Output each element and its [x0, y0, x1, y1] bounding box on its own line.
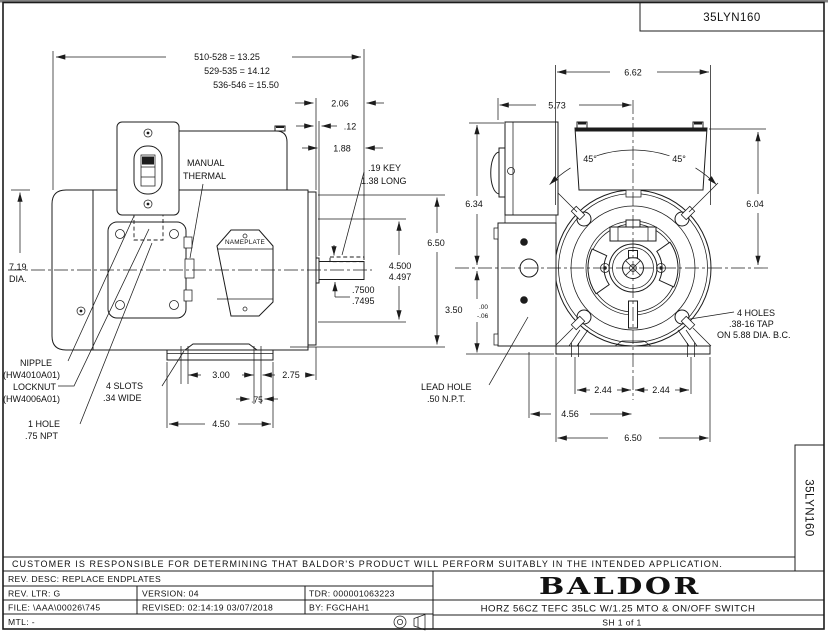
dim-075: .75	[251, 395, 263, 405]
sheet-number: SH 1 of 1	[602, 618, 641, 628]
side-strip: 35LYN160	[795, 445, 824, 571]
dim-7495: .7495	[352, 296, 375, 306]
manual-thermal-line2: THERMAL	[183, 171, 226, 181]
dim-4497: 4.497	[389, 272, 412, 282]
conduit-box-front	[494, 223, 556, 346]
title-block: CUSTOMER IS RESPONSIBLE FOR DETERMINING …	[3, 557, 824, 630]
front-view-dimensions: 6.62 5.73 45° 45° 6.34 6.04 3.50 .00 -.0…	[421, 65, 791, 443]
dim-662: 6.62	[624, 68, 642, 78]
dim-012: .12	[344, 122, 357, 132]
nipple-part-number: (HW4010A01)	[3, 370, 60, 380]
dim-188: 1.88	[333, 144, 351, 154]
holes-note-line1: 4 HOLES	[737, 308, 775, 318]
dim-overall-row2: 529-535 = 14.12	[204, 66, 270, 76]
nipple-hidden-outline	[134, 215, 163, 240]
key-hidden-outline	[330, 257, 364, 262]
dim-overall-row3: 536-546 = 15.50	[213, 80, 279, 90]
key-note-line2: 1.38 LONG	[361, 176, 407, 186]
baldor-logo: BALDOR	[539, 573, 701, 600]
nameplate-label: NAMEPLATE	[225, 239, 265, 246]
by-cell: BY: FGCHAH1	[309, 603, 370, 613]
drawing-page: 35LYN160 35LYN160	[0, 0, 828, 631]
dim-7500: .7500	[352, 285, 375, 295]
dim-overall-row1: 510-528 = 13.25	[194, 52, 260, 62]
dim-719: 7.19	[9, 262, 27, 272]
locknut-part-number: (HW4006A01)	[3, 394, 60, 404]
dim-4500: 4.500	[389, 261, 412, 271]
dim-650-side: 6.50	[427, 238, 445, 248]
engineering-drawing: 35LYN160 35LYN160	[0, 0, 828, 631]
holes-note-line2: .38-16 TAP	[729, 319, 774, 329]
dim-45-right: 45°	[672, 154, 686, 164]
locknut-label: LOCKNUT	[13, 382, 57, 392]
dim-275: 2.75	[282, 370, 300, 380]
revised-cell: REVISED: 02:14:19 03/07/2018	[142, 603, 273, 613]
disclaimer-note: CUSTOMER IS RESPONSIBLE FOR DETERMINING …	[12, 559, 723, 569]
lead-hole-note-line2: .50 N.P.T.	[427, 394, 465, 404]
projection-symbol-icon	[394, 615, 425, 631]
sheet-border	[3, 3, 824, 630]
dim-634: 6.34	[465, 199, 483, 209]
rev-desc-cell: REV. DESC: REPLACE ENDPLATES	[8, 574, 161, 584]
strip-drawing-number: 35LYN160	[803, 479, 815, 537]
hole-note-line1: 1 HOLE	[28, 419, 60, 429]
fan-cover-screw-icon	[77, 307, 85, 315]
nipple-label: NIPPLE	[20, 358, 52, 368]
hole-note-line2: .75 NPT	[25, 431, 59, 441]
dim-244-right: 2.44	[652, 385, 670, 395]
manual-thermal-line1: MANUAL	[187, 158, 225, 168]
front-view	[455, 100, 770, 400]
file-cell: FILE: \AAA\00026\745	[8, 603, 101, 613]
switch-plate	[117, 122, 179, 215]
nameplate-tag: NAMEPLATE	[217, 230, 273, 316]
rev-ltr-cell: REV. LTR: G	[8, 589, 61, 599]
switch-assembly-side	[491, 122, 558, 223]
dim-604: 6.04	[746, 199, 764, 209]
dim-573: 5.73	[548, 101, 566, 111]
dim-45-left: 45°	[583, 154, 597, 164]
drawing-title: HORZ 56CZ TEFC 35LC W/1.25 MTO & ON/OFF …	[481, 604, 756, 615]
drawing-number-box: 35LYN160	[640, 3, 824, 32]
key-note-line1: .19 KEY	[368, 163, 401, 173]
version-cell: VERSION: 04	[142, 589, 199, 599]
dim-350-tol-lower: -.06	[477, 313, 489, 320]
dim-450: 4.50	[212, 419, 230, 429]
drawing-number: 35LYN160	[703, 12, 761, 24]
dim-456: 4.56	[561, 409, 579, 419]
mtl-cell: MTL: -	[8, 617, 35, 627]
dim-300: 3.00	[212, 370, 230, 380]
slots-note-line1: 4 SLOTS	[106, 381, 143, 391]
holes-note-line3: ON 5.88 DIA. B.C.	[717, 330, 791, 340]
clamp-wing-right	[657, 242, 678, 287]
clamp-wing-left	[588, 249, 609, 294]
dim-350-tol-upper: .00	[479, 304, 488, 311]
lead-hole-note-line1: LEAD HOLE	[421, 382, 472, 392]
shaft	[319, 262, 364, 280]
c-face-flange	[308, 192, 316, 345]
slots-note-line2: .34 WIDE	[103, 393, 142, 403]
dim-350: 3.50	[445, 305, 463, 315]
dim-650-front: 6.50	[624, 433, 642, 443]
tdr-cell: TDR: 000001063223	[309, 589, 395, 599]
dim-206: 2.06	[331, 99, 349, 109]
dim-244-left: 2.44	[594, 385, 612, 395]
thermal-button	[185, 259, 194, 278]
dim-719-dia: DIA.	[9, 274, 27, 284]
